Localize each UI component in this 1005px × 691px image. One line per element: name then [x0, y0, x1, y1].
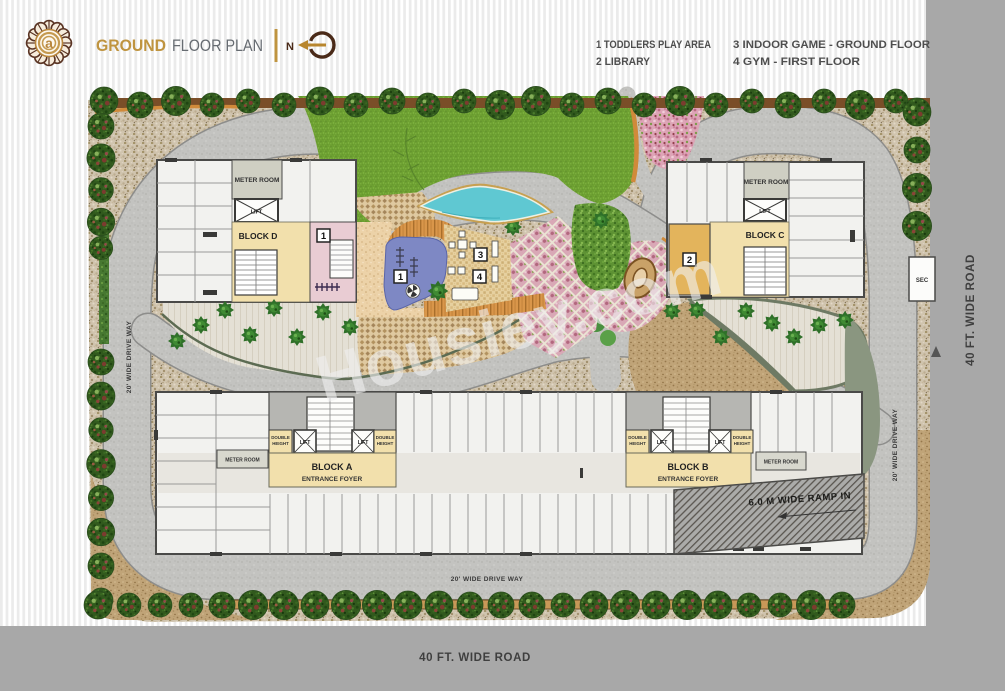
svg-text:ENTRANCE FOYER: ENTRANCE FOYER — [658, 476, 719, 483]
svg-text:40 FT. WIDE ROAD: 40 FT. WIDE ROAD — [965, 254, 977, 366]
svg-text:LIFT: LIFT — [300, 440, 311, 446]
svg-text:LIFT: LIFT — [759, 209, 771, 215]
svg-text:HEIGHT: HEIGHT — [377, 441, 394, 446]
svg-text:DOUBLE: DOUBLE — [628, 435, 647, 440]
svg-text:BLOCK C: BLOCK C — [746, 230, 785, 240]
svg-text:4 GYM - FIRST FLOOR: 4 GYM - FIRST FLOOR — [733, 56, 860, 68]
svg-text:METER ROOM: METER ROOM — [764, 460, 798, 466]
svg-text:1: 1 — [321, 231, 327, 242]
svg-text:N: N — [286, 41, 294, 53]
svg-text:DOUBLE: DOUBLE — [733, 435, 752, 440]
svg-text:LIFT: LIFT — [251, 210, 263, 216]
svg-text:BLOCK A: BLOCK A — [312, 462, 353, 472]
svg-text:20' WIDE DRIVE WAY: 20' WIDE DRIVE WAY — [451, 576, 524, 583]
svg-text:3 INDOOR GAME - GROUND FLOOR: 3 INDOOR GAME - GROUND FLOOR — [733, 39, 930, 51]
svg-text:GROUND: GROUND — [96, 36, 166, 55]
svg-text:1: 1 — [398, 272, 404, 283]
svg-text:BLOCK D: BLOCK D — [239, 231, 278, 241]
svg-text:METER ROOM: METER ROOM — [225, 458, 259, 464]
svg-text:ENTRANCE FOYER: ENTRANCE FOYER — [302, 476, 363, 483]
svg-text:20' WIDE DRIVE WAY: 20' WIDE DRIVE WAY — [892, 409, 899, 482]
svg-text:LIFT: LIFT — [358, 440, 369, 446]
svg-text:FLOOR PLAN: FLOOR PLAN — [172, 36, 263, 55]
svg-text:3: 3 — [478, 250, 483, 261]
svg-text:HEIGHT: HEIGHT — [629, 441, 646, 446]
svg-text:LIFT: LIFT — [657, 440, 668, 446]
svg-text:1 TODDLERS PLAY AREA: 1 TODDLERS PLAY AREA — [596, 39, 711, 51]
svg-text:SEC: SEC — [916, 278, 929, 284]
svg-text:DOUBLE: DOUBLE — [376, 435, 395, 440]
svg-text:HEIGHT: HEIGHT — [734, 441, 751, 446]
svg-text:METER ROOM: METER ROOM — [235, 177, 280, 184]
svg-text:HEIGHT: HEIGHT — [272, 441, 289, 446]
svg-text:METER ROOM: METER ROOM — [744, 179, 789, 186]
svg-text:4: 4 — [477, 272, 483, 283]
svg-text:BLOCK B: BLOCK B — [668, 462, 709, 472]
svg-text:a: a — [45, 35, 53, 51]
svg-text:DOUBLE: DOUBLE — [271, 435, 290, 440]
svg-text:2 LIBRARY: 2 LIBRARY — [596, 56, 651, 68]
svg-text:LIFT: LIFT — [715, 440, 726, 446]
svg-text:20' WIDE DRIVE WAY: 20' WIDE DRIVE WAY — [126, 321, 133, 394]
svg-text:40 FT. WIDE ROAD: 40 FT. WIDE ROAD — [419, 652, 531, 664]
